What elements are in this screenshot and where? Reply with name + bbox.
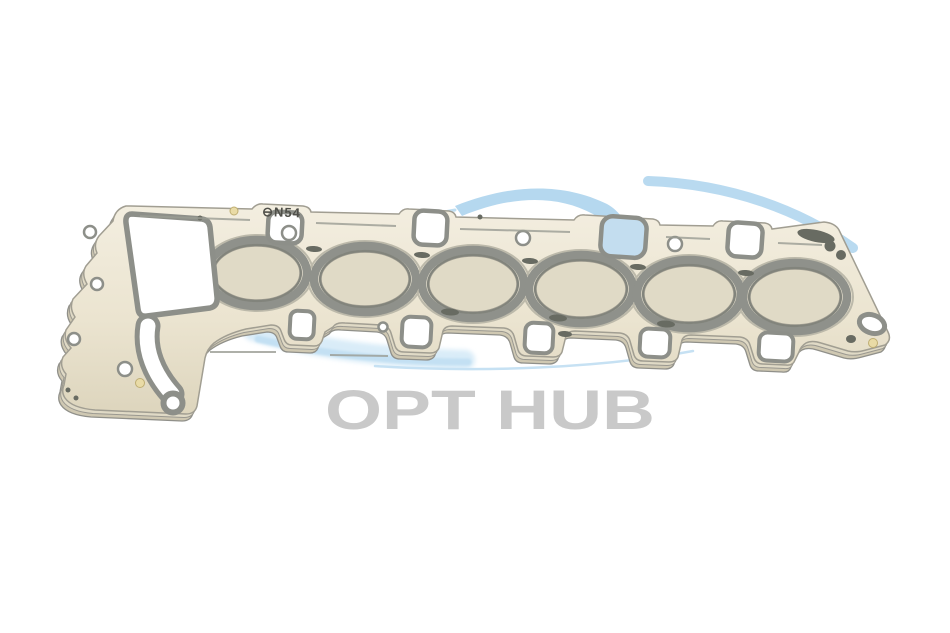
part-number-stamp: ⊖N54 [262,204,301,220]
watermark-brand-text: OPT HUB [325,378,655,441]
gasket-product-image: OPT HUB [0,0,950,633]
coolant-slot-blue [600,216,648,259]
chain-case-opening [126,214,217,316]
product-photo: OPT HUB [0,0,950,633]
dowel-hole [164,394,183,413]
